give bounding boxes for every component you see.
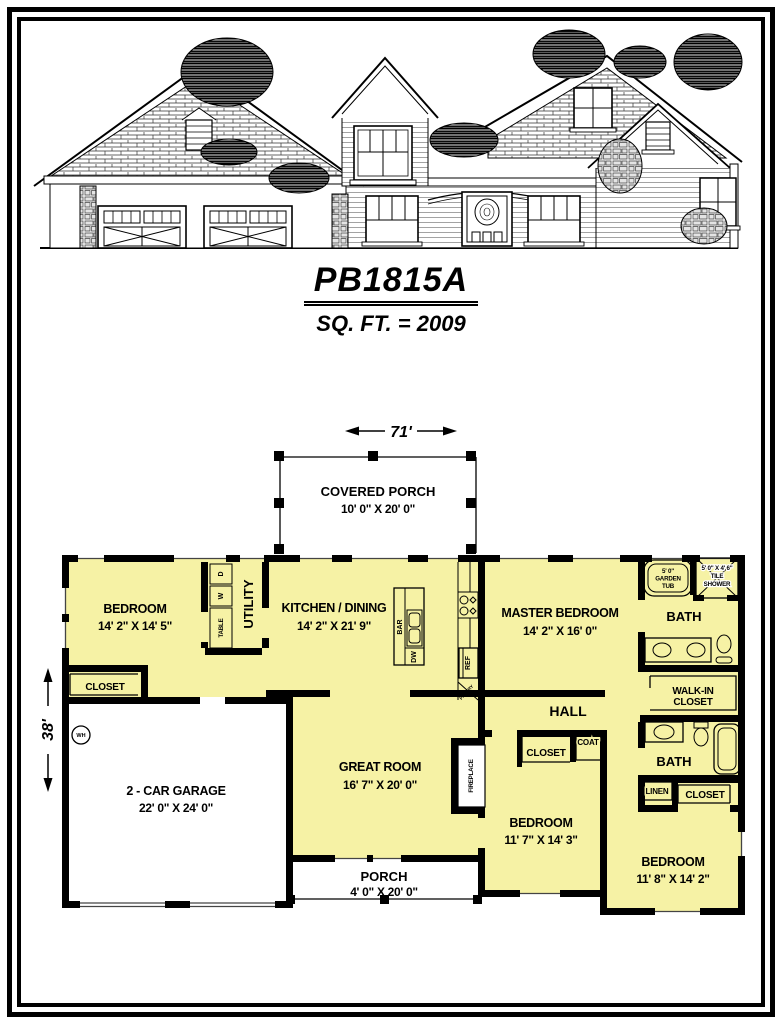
garage-label: 2 - CAR GARAGE bbox=[126, 784, 225, 798]
covered-porch-label: COVERED PORCH bbox=[321, 484, 436, 499]
front-window-left bbox=[362, 196, 422, 246]
arrow-down-icon bbox=[44, 778, 53, 792]
floor-plan-drawing: 71' 38' COVERED PORCH 10' 0" X 20' 0" BE… bbox=[40, 424, 745, 915]
walk-in-closet-line2: CLOSET bbox=[673, 697, 712, 708]
great-room-label: GREAT ROOM bbox=[339, 760, 421, 774]
tree-blob-right bbox=[674, 34, 742, 90]
coat-closet-label: COAT bbox=[577, 738, 599, 747]
master-bath-label: BATH bbox=[666, 609, 701, 624]
tree-blob-center bbox=[533, 30, 605, 78]
refrigerator-label: REF bbox=[465, 655, 472, 670]
covered-porch-dims: 10' 0" X 20' 0" bbox=[341, 502, 415, 516]
hall-label: HALL bbox=[549, 703, 587, 719]
garden-tub-line1: 5' 0" bbox=[662, 568, 674, 575]
garden-tub-line3: TUB bbox=[662, 583, 675, 590]
house-plan-drawing: 71' 38' COVERED PORCH 10' 0" X 20' 0" BE… bbox=[0, 0, 782, 1024]
fireplace-label: FIREPLACE bbox=[468, 759, 475, 792]
title-block: PB1815A SQ. FT. = 2009 bbox=[0, 261, 782, 337]
plan-number: PB1815A bbox=[304, 261, 478, 306]
garden-tub-line2: GARDEN bbox=[655, 576, 681, 583]
bush-center-left bbox=[269, 163, 329, 193]
bedroom2-dims: 11' 7" X 14' 3" bbox=[504, 833, 577, 847]
front-window-right bbox=[524, 196, 584, 246]
porch-label: PORCH bbox=[361, 869, 408, 884]
closet3-label: CLOSET bbox=[685, 790, 724, 801]
roof-shade-patch-right bbox=[614, 46, 666, 78]
roof-shade-patch-garage bbox=[201, 139, 257, 165]
arrow-right-icon bbox=[443, 427, 457, 436]
front-elevation-drawing bbox=[34, 30, 742, 248]
tile-shower-line1: 5' 0" X 4' 6" bbox=[702, 565, 733, 572]
tile-shower-line2: TILE bbox=[711, 573, 724, 580]
bath2-label: BATH bbox=[656, 754, 691, 769]
dimension-overall-width: 71' bbox=[345, 424, 457, 441]
bedroom2-label: BEDROOM bbox=[509, 816, 572, 830]
hall-closet-label: CLOSET bbox=[526, 748, 565, 759]
center-dormer bbox=[332, 58, 438, 186]
plan-square-footage: SQ. FT. = 2009 bbox=[0, 311, 782, 337]
dimension-overall-depth: 38' bbox=[40, 668, 57, 792]
utility-label: UTILITY bbox=[241, 579, 256, 628]
garage-door-left bbox=[98, 206, 186, 248]
stone-bush-right bbox=[598, 139, 642, 193]
dim-depth-label: 38' bbox=[40, 718, 57, 741]
stone-pillar-right bbox=[332, 194, 348, 248]
dishwasher-label: DW bbox=[411, 651, 418, 663]
kitchen-label: KITCHEN / DINING bbox=[282, 601, 387, 615]
tile-shower-line3: SHOWER bbox=[704, 581, 731, 588]
table-label: TABLE bbox=[218, 618, 225, 637]
stone-pillar-left bbox=[80, 186, 96, 248]
master-bedroom-dims: 14' 2" X 16' 0" bbox=[523, 624, 597, 638]
garage-dims: 22' 0" X 24' 0" bbox=[139, 801, 213, 815]
garage-door-right bbox=[204, 206, 292, 248]
tree-blob-left bbox=[181, 38, 273, 106]
bush-center-right bbox=[430, 123, 498, 157]
bush-far-right bbox=[681, 208, 727, 244]
arrow-left-icon bbox=[345, 427, 359, 436]
plan-sheet: 71' 38' COVERED PORCH 10' 0" X 20' 0" BE… bbox=[0, 0, 782, 1024]
bedroom1-dims: 14' 2" X 14' 5" bbox=[98, 619, 172, 633]
great-room-dims: 16' 7" X 20' 0" bbox=[343, 778, 417, 792]
front-door bbox=[462, 192, 512, 246]
bedroom3-label: BEDROOM bbox=[641, 855, 704, 869]
bedroom1-label: BEDROOM bbox=[103, 602, 166, 616]
dryer-label: D bbox=[218, 571, 225, 576]
bedroom3-dims: 11' 8" X 14' 2" bbox=[636, 872, 709, 886]
water-heater-label: WH bbox=[76, 733, 85, 739]
porch-dims: 4' 0" X 20' 0" bbox=[350, 885, 418, 899]
dim-width-label: 71' bbox=[390, 424, 413, 441]
bar-label: BAR bbox=[397, 619, 404, 634]
kitchen-dims: 14' 2" X 21' 9" bbox=[297, 619, 371, 633]
walk-in-closet-line1: WALK-IN bbox=[672, 686, 713, 697]
master-bedroom-label: MASTER BEDROOM bbox=[501, 606, 618, 620]
arrow-up-icon bbox=[44, 668, 53, 682]
washer-label: W bbox=[218, 592, 225, 599]
closet1-label: CLOSET bbox=[85, 682, 124, 693]
linen-label: LINEN bbox=[645, 787, 668, 796]
